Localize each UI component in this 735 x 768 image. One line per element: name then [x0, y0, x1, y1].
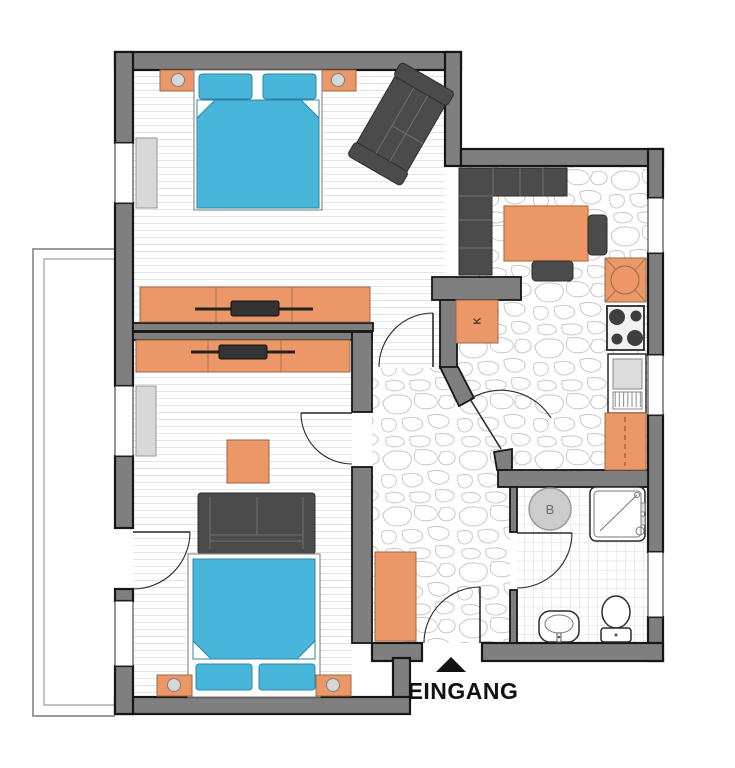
wall-kitchen-top — [461, 149, 663, 166]
chair — [532, 261, 573, 281]
wall-bedroom2-right-b — [352, 467, 372, 643]
sofa — [198, 493, 315, 554]
window-sill-bedroom2 — [136, 386, 156, 456]
pillow — [199, 74, 252, 99]
duvet — [197, 100, 319, 208]
toilet — [601, 596, 631, 642]
balcony — [33, 249, 115, 716]
entrance-arrow-icon — [436, 657, 466, 672]
pillow — [263, 74, 316, 99]
washbasin — [539, 611, 579, 642]
window-bedroom2-lower — [115, 601, 133, 666]
wall-bottom-left — [115, 697, 410, 714]
duvet — [193, 559, 315, 659]
entrance-label: EINGANG — [408, 678, 519, 704]
wall-bedroom1-right — [445, 52, 461, 166]
oven-appliance — [608, 354, 646, 413]
double-bed — [188, 554, 320, 697]
wall-bathroom-left-b — [510, 590, 517, 643]
closet-label: K — [473, 317, 484, 325]
window-kitchen-lower — [648, 355, 663, 415]
window-kitchen-upper — [648, 198, 663, 253]
ottoman — [227, 440, 269, 483]
closet-k: K — [456, 300, 498, 343]
window-sill-bedroom1 — [136, 138, 157, 208]
shower — [590, 487, 645, 541]
hall-wardrobe — [375, 552, 416, 641]
wall-bottom-right — [482, 643, 663, 661]
lamp-icon — [332, 74, 345, 87]
pillow — [259, 664, 315, 690]
wall-bathroom-top — [498, 470, 648, 487]
floor-plan-svg: K B — [0, 0, 735, 768]
wall-bedroom2-top — [133, 332, 372, 340]
window-bathroom — [648, 552, 663, 617]
hallway — [375, 552, 416, 641]
dining-table — [504, 206, 588, 261]
boiler-label: B — [546, 502, 555, 517]
boiler: B — [529, 488, 571, 530]
tall-cabinet — [605, 413, 646, 470]
wall-living-partition — [432, 277, 521, 300]
wall-bathroom-left-a — [510, 487, 517, 532]
stove — [607, 306, 644, 350]
entrance: EINGANG — [408, 657, 519, 704]
lamp-icon — [172, 74, 185, 87]
sideboard-tv — [136, 340, 350, 372]
window-bedroom2-upper — [115, 386, 133, 456]
floor-plan: K B — [0, 0, 735, 768]
window-bedroom1 — [115, 143, 133, 203]
sideboard-tv — [140, 287, 370, 322]
wall-bedroom-divider — [133, 323, 373, 331]
double-bed — [194, 70, 322, 210]
kitchen-sink — [605, 258, 646, 302]
lamp-icon — [168, 679, 181, 692]
lamp-icon — [327, 679, 340, 692]
pillow — [196, 664, 252, 690]
wall-bedroom2-right-a — [352, 332, 372, 412]
chair — [588, 215, 607, 255]
